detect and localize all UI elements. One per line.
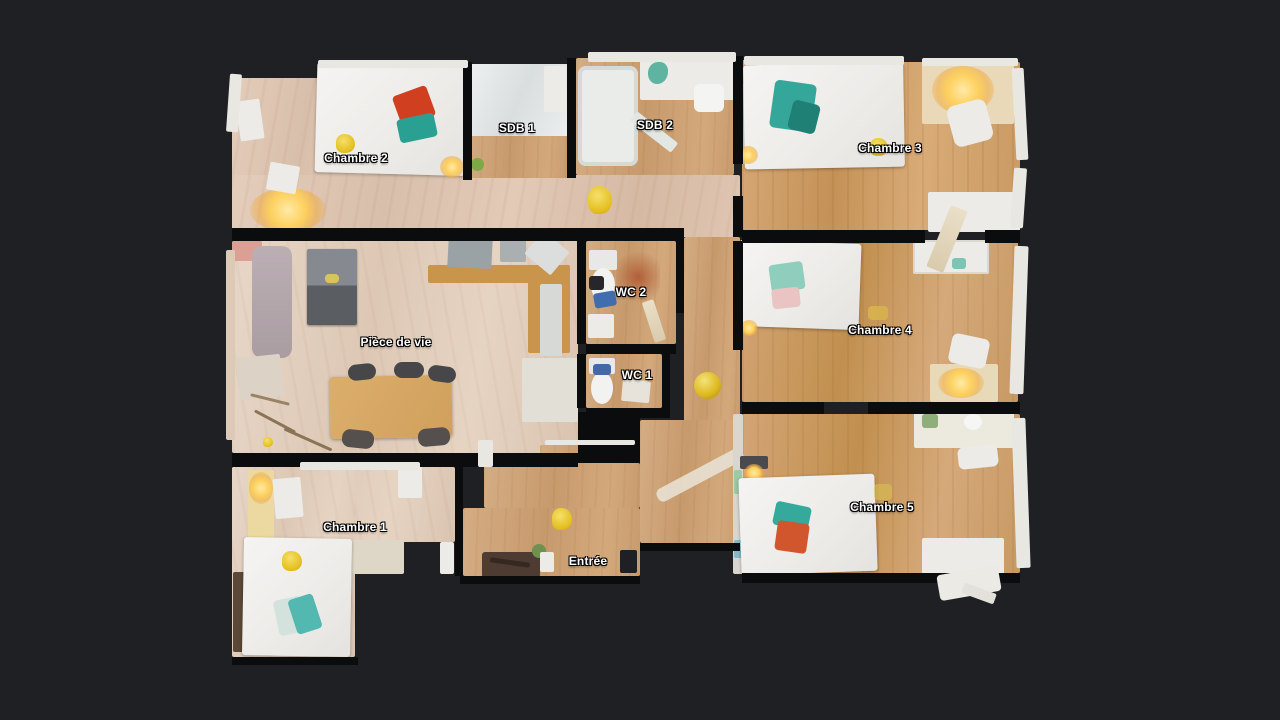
chair [417,427,450,448]
plant [471,158,484,171]
room-label-chambre-2[interactable]: Chambre 2 [324,151,388,165]
chair [394,362,424,378]
wardrobe-glow [249,472,273,504]
wall [662,354,670,408]
scan-edge-fragment [545,440,635,445]
bathtub [578,66,638,166]
floorplan[interactable]: Chambre 2 SDB 1 SDB 2 Chambre 3 Pièce de… [0,0,1280,720]
desk-end [440,542,454,574]
room-label-entree[interactable]: Entrée [569,554,608,568]
lamp-glow [440,156,464,178]
pillow-orange [774,520,810,554]
trash-bin [589,276,604,290]
room-label-sdb-2[interactable]: SDB 2 [637,118,673,132]
sofa [252,246,292,358]
chair [957,444,999,470]
wall [455,467,463,576]
wall [733,56,743,164]
toilet-bowl [591,372,613,404]
toilet-tank [589,250,617,270]
wall [676,241,684,313]
wall-fragment [398,466,422,498]
chair [341,428,375,449]
wall [577,241,586,344]
wall [232,657,358,665]
vanity [544,66,566,112]
desk-lamp-glow [938,368,984,398]
wall [985,230,1020,243]
scan-edge-fragment [226,250,235,440]
room-label-wc-2[interactable]: WC 2 [616,285,647,299]
room-label-chambre-4[interactable]: Chambre 4 [848,323,912,337]
scan-edge-fragment [478,440,493,467]
wall [567,58,576,178]
rug-yellow [868,306,888,320]
wall [868,402,1020,414]
wall [586,344,676,354]
desk-item-green [922,414,938,428]
desk-lamp-glow [250,188,326,232]
chair [266,162,300,195]
sink [588,314,614,338]
scan-edge-fragment [318,60,468,68]
wall [463,62,472,180]
cleaning-item-blue [593,364,611,375]
kitchen-island [307,249,357,325]
shelf [272,477,303,519]
door-recess [620,550,637,573]
room-label-chambre-3[interactable]: Chambre 3 [858,141,922,155]
scan-marker [282,551,302,571]
wall [232,228,684,241]
wall [578,412,640,463]
scan-edge-fragment [922,58,1018,66]
shelf [540,552,554,572]
scan-marker-sphere [694,372,721,399]
floor-entree-upper[interactable] [484,463,640,508]
scan-edge-fragment [588,52,736,62]
kitchen-clutter [522,358,578,422]
scan-edge-fragment [300,462,420,470]
fridge [540,284,562,356]
room-label-wc-1[interactable]: WC 1 [622,368,653,382]
shelf [621,379,651,403]
scan-marker [552,508,572,530]
stove [500,240,526,262]
scan-marker [588,186,612,214]
wall [460,576,640,584]
scan-edge-fragment [744,56,904,65]
desk-item-round [964,414,982,430]
wall [742,230,925,243]
wall [577,354,586,408]
sink [694,84,724,112]
wall [733,241,743,350]
closet-teal-detail [952,258,966,269]
room-label-chambre-1[interactable]: Chambre 1 [323,520,387,534]
wall [742,402,824,414]
wall [640,543,740,551]
island-detail [325,274,339,283]
desk [352,540,404,574]
scan-marker [263,437,273,447]
room-label-sdb-1[interactable]: SDB 1 [499,121,535,135]
rug-yellow [874,484,892,500]
sink-unit [447,237,493,269]
sideboard [236,354,284,400]
room-label-piece-de-vie[interactable]: Pièce de vie [360,335,431,349]
room-label-chambre-5[interactable]: Chambre 5 [850,500,914,514]
pillow-pink [771,287,801,310]
scan-edge-fragment [1010,168,1027,229]
